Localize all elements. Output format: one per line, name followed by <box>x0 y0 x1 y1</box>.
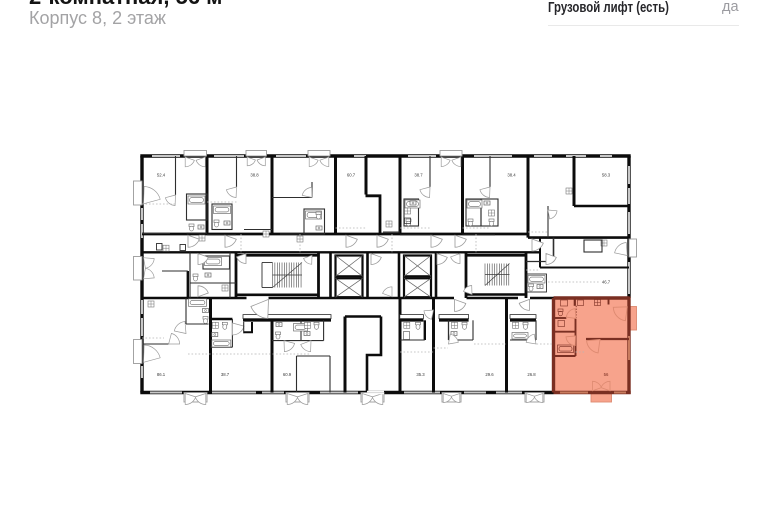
svg-text:38.8: 38.8 <box>250 173 259 178</box>
svg-text:29.6: 29.6 <box>485 372 494 377</box>
svg-text:38.4: 38.4 <box>507 173 516 178</box>
svg-text:58.3: 58.3 <box>602 173 611 178</box>
svg-text:52.4: 52.4 <box>157 173 166 178</box>
svg-text:38.7: 38.7 <box>221 372 230 377</box>
svg-text:60.9: 60.9 <box>283 372 292 377</box>
svg-text:56: 56 <box>604 372 609 377</box>
svg-text:26.8: 26.8 <box>527 372 536 377</box>
svg-text:46.7: 46.7 <box>602 280 611 285</box>
svg-text:35.3: 35.3 <box>416 372 425 377</box>
svg-text:86.1: 86.1 <box>157 372 166 377</box>
svg-text:38.7: 38.7 <box>414 173 423 178</box>
svg-text:60.7: 60.7 <box>347 173 356 178</box>
